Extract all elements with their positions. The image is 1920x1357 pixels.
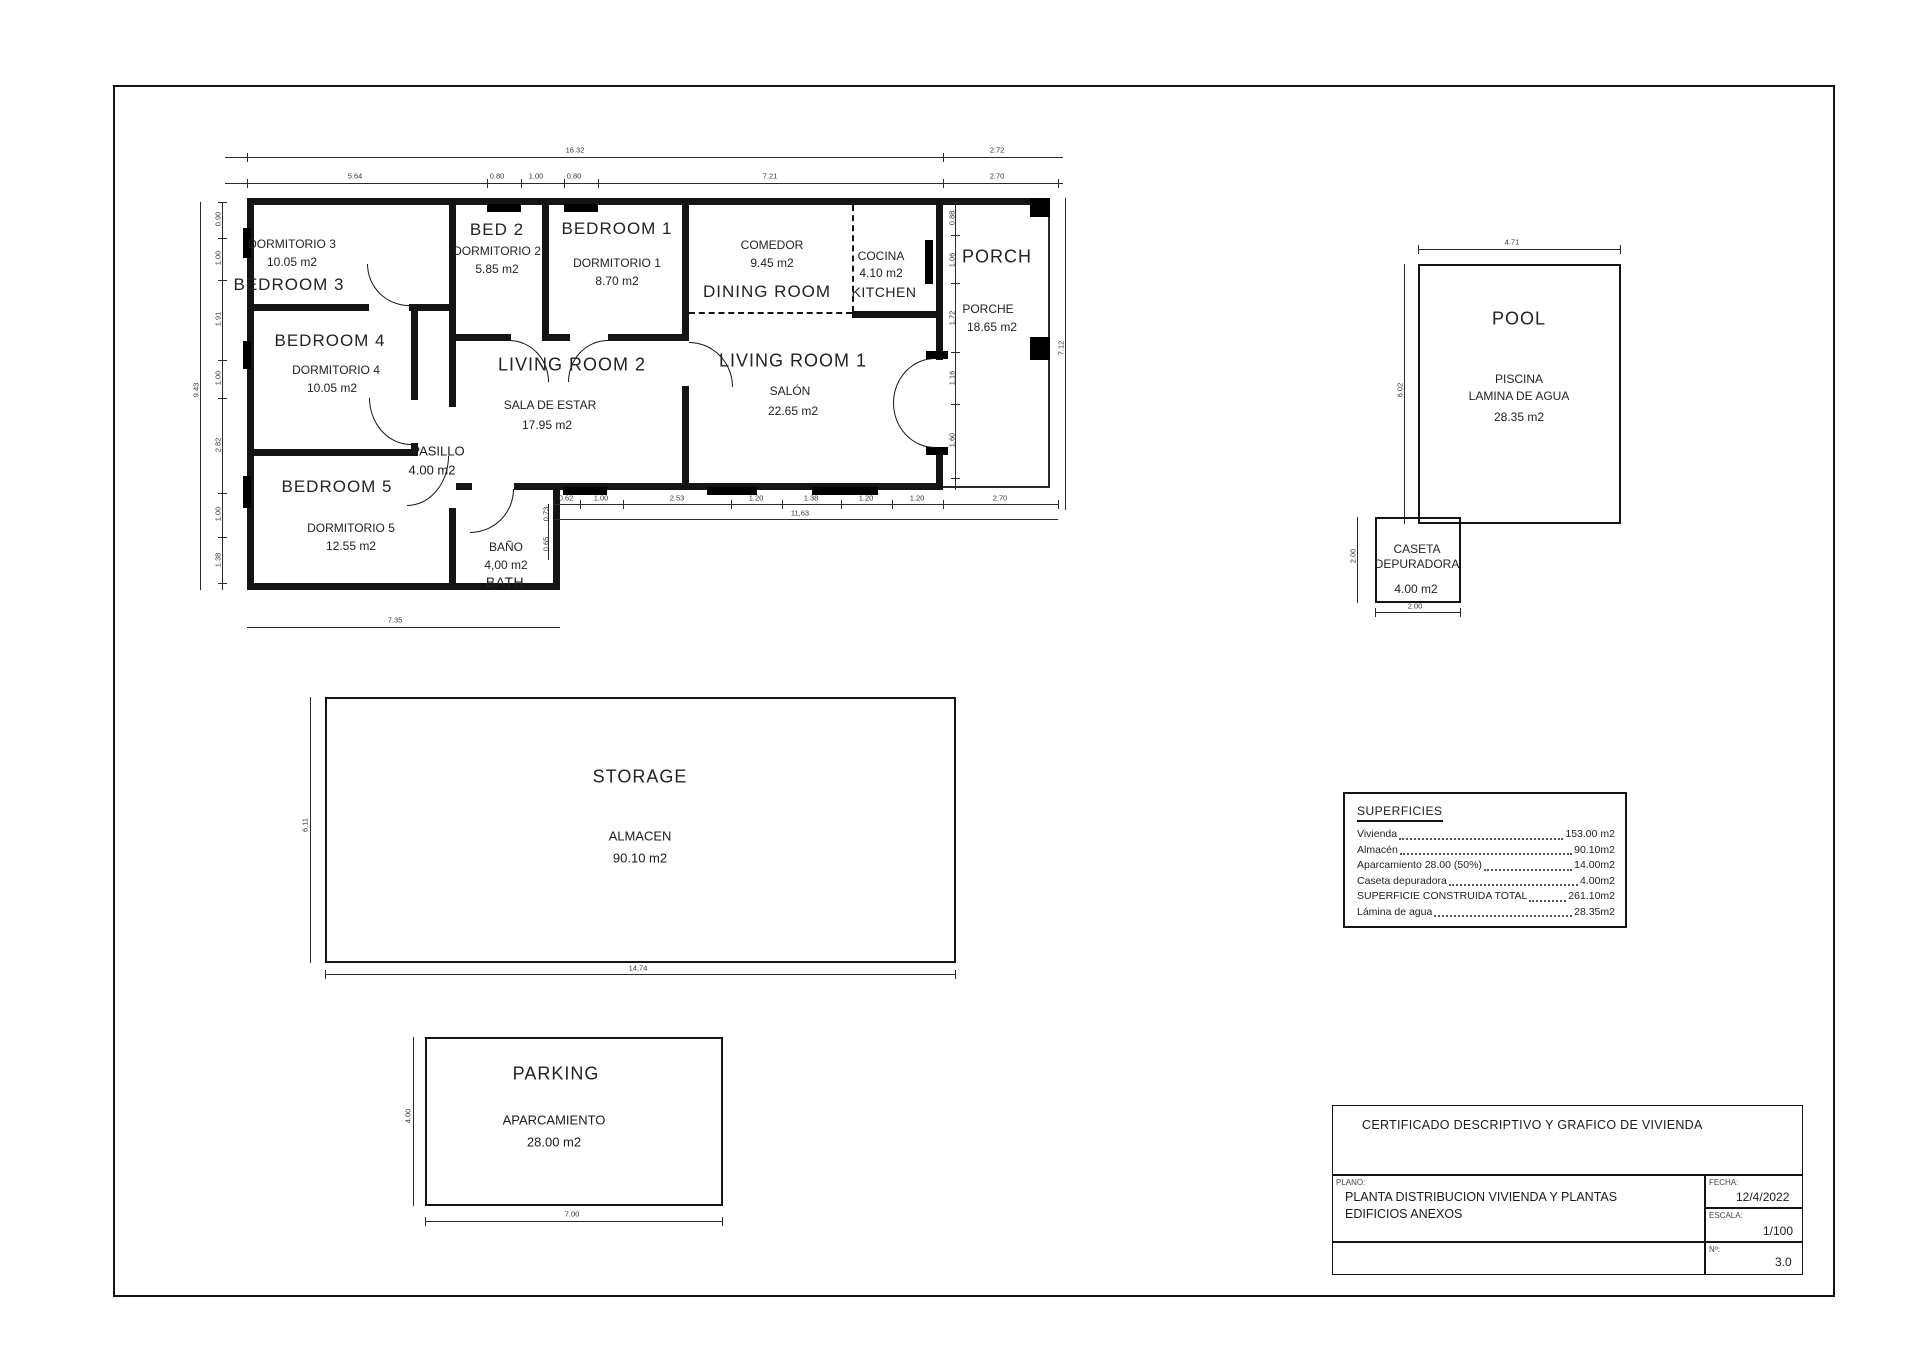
dimension-tick [218,360,227,361]
dimension-tick [1058,179,1059,188]
superficies-table: SUPERFICIES Vivienda153.00 m2 Almacén90.… [1343,792,1627,928]
dimension-tick [580,500,581,509]
dimension-label: 6,11 [301,818,310,832]
dimension-line [553,504,1058,505]
dimension-label: 6.02 [1396,383,1405,398]
dimension-label: 4.00 [404,1109,413,1124]
row-value: 28.35m2 [1574,905,1615,921]
dimension-label: 1.00 [214,371,223,386]
dimension-line [247,627,560,628]
dot-leader [1400,853,1572,855]
dimension-tick [425,1217,426,1226]
dimension-label: 0.88 [948,211,957,226]
escala-label: ESCALA: [1709,1211,1743,1220]
room-title: LIVING ROOM 1 [719,351,867,372]
room-title: PORCH [962,247,1032,268]
window [487,204,521,212]
dimension-line [225,183,1063,184]
dimension-line [1375,612,1461,613]
dot-leader [1484,869,1572,871]
row-label: SUPERFICIE CONSTRUIDA TOTAL [1357,889,1527,905]
room-title: DINING ROOM [703,282,831,302]
room-label-es: COCINA [858,249,905,263]
dimension-label: 7.12 [1057,341,1066,356]
wall [514,483,559,490]
dimension-tick [564,179,565,188]
dot-leader [1529,900,1566,902]
room-area: 90.10 m2 [613,851,667,866]
plano-line2: EDIFICIOS ANEXOS [1345,1207,1462,1221]
dimension-label: 1.20 [910,494,925,503]
room-area: 4.00 m2 [409,463,456,478]
room-area: 18.65 m2 [967,320,1017,334]
window [925,240,933,284]
dimension-line [310,697,311,963]
row-value: 153.00 m2 [1565,827,1615,843]
dimension-label: 2.00 [1408,602,1423,611]
dimension-tick [487,179,488,188]
dimension-tick [247,153,248,162]
dimension-tick [951,404,960,405]
dimension-label: 14,74 [629,964,648,973]
fecha-label: FECHA: [1709,1178,1738,1187]
room-label-es: SALA DE ESTAR [504,398,596,412]
dimension-tick [521,179,522,188]
wall [449,334,511,341]
superficies-title: SUPERFICIES [1357,804,1443,822]
num-label: Nº: [1709,1245,1720,1254]
dot-leader [1399,838,1563,840]
room-area: 10.05 m2 [307,381,357,395]
room-area: 28.35 m2 [1494,410,1544,424]
wall [682,386,689,490]
room-title: PASILLO [411,444,464,459]
table-row: Aparcamiento 28.00 (50%)14.00m2 [1357,858,1615,874]
room-label-es: APARCAMIENTO [503,1113,606,1128]
dimension-tick [325,970,326,979]
room-area: 4,00 m2 [484,558,527,572]
room-title: PARKING [513,1064,600,1085]
dimension-tick [1418,245,1419,254]
wall [449,311,456,407]
dimension-tick [1375,608,1376,617]
room-title: BEDROOM 5 [281,477,392,497]
dimension-label: 1.00 [529,172,544,181]
window [243,476,251,508]
titleblock-certificate-cell [1332,1105,1803,1175]
room-title: BEDROOM 4 [274,331,385,351]
room-title: BEDROOM 3 [233,275,344,295]
room-area: 28.00 m2 [527,1135,581,1150]
room-title: BEDROOM 1 [561,219,672,239]
room-title: BATH [486,574,524,590]
porch-pillar [1030,198,1050,217]
room-label-es: COMEDOR [741,238,804,252]
room-label-es: LAMINA DE AGUA [1469,389,1570,403]
dimension-label: 2.70 [993,494,1008,503]
plan-sheet: 16.32 2.72 5.64 0.80 1.00 0.80 7.21 2.70… [0,0,1920,1357]
dimension-label: 7.00 [565,1210,580,1219]
fecha-value: 12/4/2022 [1736,1190,1789,1204]
room-label-es: SALÓN [770,384,811,398]
room-label-es: PORCHE [962,302,1013,316]
dining-open-boundary [689,312,852,314]
room-area: 9.45 m2 [750,256,793,270]
dimension-label: 2.70 [990,172,1005,181]
wall [542,198,549,341]
dimension-label: 2.53 [670,494,685,503]
room-title: POOL [1492,309,1546,330]
dimension-tick [1620,245,1621,254]
table-row: SUPERFICIE CONSTRUIDA TOTAL261.10m2 [1357,889,1615,905]
escala-value: 1/100 [1763,1224,1793,1238]
wall [852,311,943,318]
dimension-label: 0.73 [542,507,551,522]
table-row: Almacén90.10m2 [1357,843,1615,859]
dimension-label: 2.82 [214,438,223,453]
plano-label: PLANO: [1336,1178,1365,1187]
dimension-label: 7.35 [388,616,403,625]
dimension-label: 2.00 [1349,549,1358,564]
wall [247,198,1050,205]
plano-line1: PLANTA DISTRIBUCION VIVIENDA Y PLANTAS [1345,1190,1617,1204]
dimension-label: 4.71 [1505,238,1520,247]
room-label-es: PISCINA [1495,372,1543,386]
room-label-es: BAÑO [489,540,523,554]
dimension-label: 16.32 [566,146,585,155]
dimension-tick [943,179,944,188]
room-label-es: CASETA [1393,542,1440,556]
dimension-label: 2.72 [990,146,1005,155]
room-title: LIVING ROOM 2 [498,355,646,376]
dimension-line [225,157,1063,158]
dimension-label: 1.06 [948,253,957,268]
room-title: KITCHEN [852,284,917,300]
dimension-tick [951,283,960,284]
dot-leader [1449,884,1578,886]
room-label-es: DORMITORIO 2 [453,244,541,258]
room-area: 8.70 m2 [595,274,638,288]
table-row: Caseta depuradora4.00m2 [1357,874,1615,890]
dimension-line [553,519,1058,520]
room-area: 17.95 m2 [522,418,572,432]
dimension-tick [943,153,944,162]
dimension-label: 1.00 [214,251,223,266]
room-label-es: DORMITORIO 4 [292,363,380,377]
dimension-label: 1.20 [859,494,874,503]
row-label: Aparcamiento 28.00 (50%) [1357,858,1482,874]
dimension-tick [841,500,842,509]
window [243,341,251,369]
row-label: Caseta depuradora [1357,874,1447,890]
dimension-tick [951,235,960,236]
dimension-tick [1058,500,1059,509]
dimension-tick [218,238,227,239]
dimension-tick [951,478,960,479]
room-area: 5.85 m2 [475,262,518,276]
dimension-tick [943,500,944,509]
table-row: Vivienda153.00 m2 [1357,827,1615,843]
room-label-es: DORMITORIO 1 [573,256,661,270]
room-label-es: DEPURADORA [1375,557,1460,571]
wall [411,304,418,400]
dimension-label: 1.20 [749,494,764,503]
dimension-line [325,974,956,975]
dimension-label: 1.38 [214,553,223,568]
row-value: 90.10m2 [1574,843,1615,859]
dimension-label: 1.00 [214,507,223,522]
dimension-tick [218,398,227,399]
dimension-tick [722,1217,723,1226]
row-label: Almacén [1357,843,1398,859]
dimension-label: 7.21 [763,172,778,181]
dimension-label: 0.80 [490,172,505,181]
wall [608,334,689,341]
room-title: BED 2 [470,220,524,240]
dimension-tick [218,280,227,281]
row-value: 14.00m2 [1574,858,1615,874]
wall [682,198,689,341]
dimension-label: 0.80 [567,172,582,181]
dimension-tick [598,179,599,188]
dimension-label: 1.38 [804,494,819,503]
wall [247,449,416,456]
row-label: Lámina de agua [1357,905,1432,921]
dimension-label: 0.62 [559,494,574,503]
dimension-tick [892,500,893,509]
dimension-label: 11,63 [791,509,809,518]
dimension-label: 1.00 [594,494,609,503]
dimension-label: 1.60 [948,433,957,448]
num-value: 3.0 [1775,1255,1792,1269]
row-label: Vivienda [1357,827,1397,843]
dimension-tick [955,970,956,979]
dimension-tick [951,202,960,203]
dimension-tick [951,352,960,353]
room-area: 4.00 m2 [1394,582,1437,596]
dimension-tick [247,179,248,188]
dimension-tick [623,500,624,509]
dimension-tick [553,500,554,509]
dot-leader [1434,915,1572,917]
porch-edge [943,486,1050,488]
dimension-line [1418,249,1621,250]
room-area: 12.55 m2 [326,539,376,553]
row-value: 4.00m2 [1580,874,1615,890]
room-label-es: ALMACEN [609,829,672,844]
dimension-tick [218,202,227,203]
titleblock-empty-cell [1332,1242,1705,1275]
certificate-text: CERTIFICADO DESCRIPTIVO Y GRAFICO DE VIV… [1362,1118,1703,1132]
room-area: 4.10 m2 [859,266,902,280]
wall [247,304,369,311]
dimension-label: 5.64 [348,172,363,181]
dimension-tick [1460,608,1461,617]
door-leaf [926,447,948,455]
dimension-tick [218,537,227,538]
dimension-tick [731,500,732,509]
dimension-label: 0.65 [542,537,551,552]
dimension-label: 1.72 [948,311,957,326]
table-row: Lámina de agua28.35m2 [1357,905,1615,921]
row-value: 261.10m2 [1568,889,1615,905]
dimension-tick [218,583,227,584]
wall [936,198,943,360]
room-area: 22.65 m2 [768,404,818,418]
window [564,204,598,212]
dimension-line [413,1037,414,1206]
dimension-label: 9.43 [192,383,201,398]
dimension-label: 1.91 [214,312,223,327]
wall [549,334,570,341]
dimension-label: 1.16 [948,371,957,386]
room-title: STORAGE [593,767,688,788]
dimension-tick [218,493,227,494]
dimension-tick [782,500,783,509]
porch-pillar [1030,337,1050,360]
room-label-es: DORMITORIO 3 [248,237,336,251]
room-label-es: DORMITORIO 5 [307,521,395,535]
dimension-label: 0.90 [214,212,223,227]
dimension-line [425,1221,723,1222]
wall [449,508,456,590]
room-area: 10.05 m2 [267,255,317,269]
